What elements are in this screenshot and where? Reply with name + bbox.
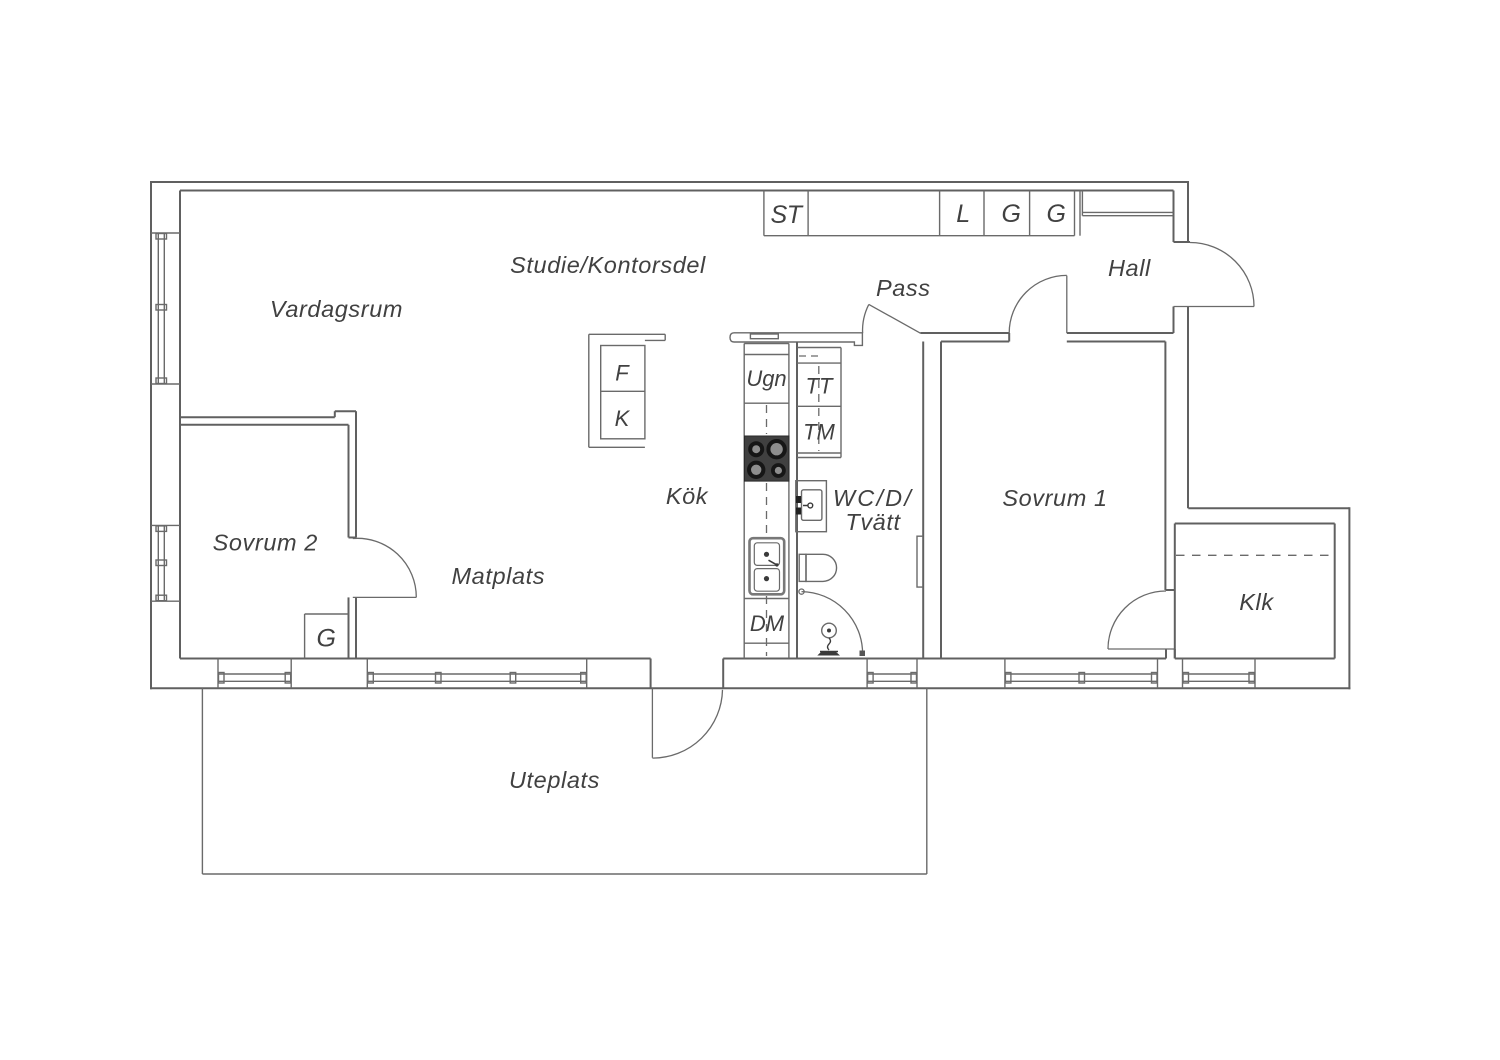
svg-text:L: L [956, 200, 969, 228]
svg-text:Matplats: Matplats [451, 563, 545, 589]
svg-text:K: K [615, 406, 631, 431]
svg-text:Studie/Kontorsdel: Studie/Kontorsdel [510, 252, 706, 278]
svg-text:Ugn: Ugn [746, 366, 786, 391]
svg-text:Pass: Pass [876, 275, 931, 301]
svg-text:Vardagsrum: Vardagsrum [270, 296, 403, 322]
svg-text:Kök: Kök [666, 483, 709, 509]
svg-text:F: F [615, 361, 630, 386]
svg-text:DM: DM [750, 611, 785, 636]
svg-text:ST: ST [771, 201, 804, 229]
svg-text:Klk: Klk [1239, 589, 1274, 615]
svg-text:G: G [317, 625, 336, 653]
svg-text:TT: TT [806, 374, 834, 399]
svg-text:G: G [1002, 200, 1021, 228]
svg-text:Hall: Hall [1108, 255, 1151, 281]
svg-text:Uteplats: Uteplats [509, 767, 600, 793]
svg-text:TM: TM [803, 420, 835, 445]
svg-text:WC/D/: WC/D/ [833, 485, 913, 511]
svg-text:Sovrum 1: Sovrum 1 [1002, 485, 1107, 511]
svg-text:G: G [1047, 200, 1066, 228]
svg-text:Sovrum 2: Sovrum 2 [213, 530, 318, 556]
svg-text:Tvätt: Tvätt [845, 509, 901, 535]
